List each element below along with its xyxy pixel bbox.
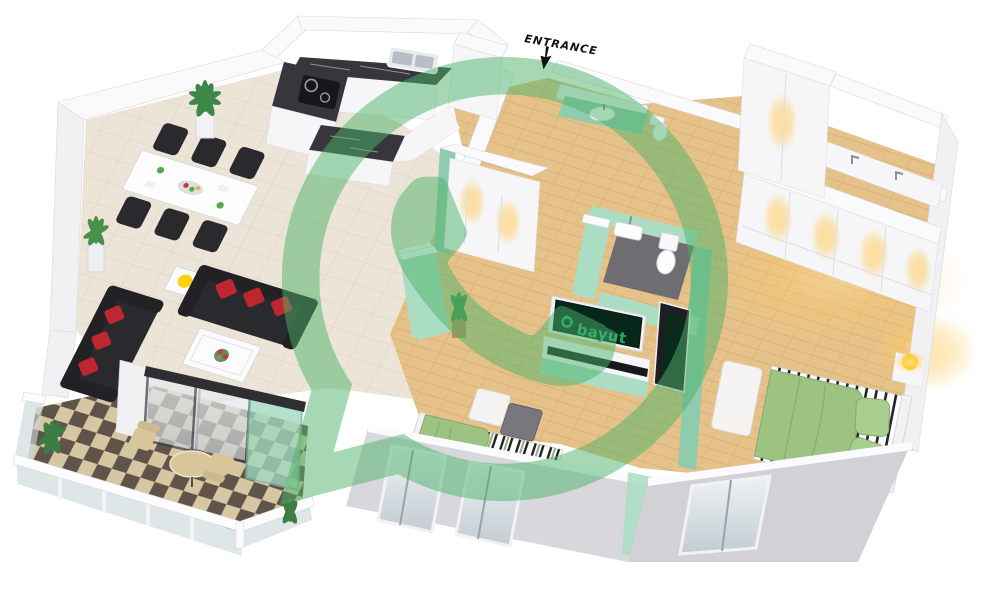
floor-plan-page: bayut: [0, 0, 988, 600]
window: [680, 476, 770, 554]
floor-plan-3d-render: bayut: [0, 0, 988, 600]
entrance-label: ENTRANCE: [523, 32, 598, 58]
